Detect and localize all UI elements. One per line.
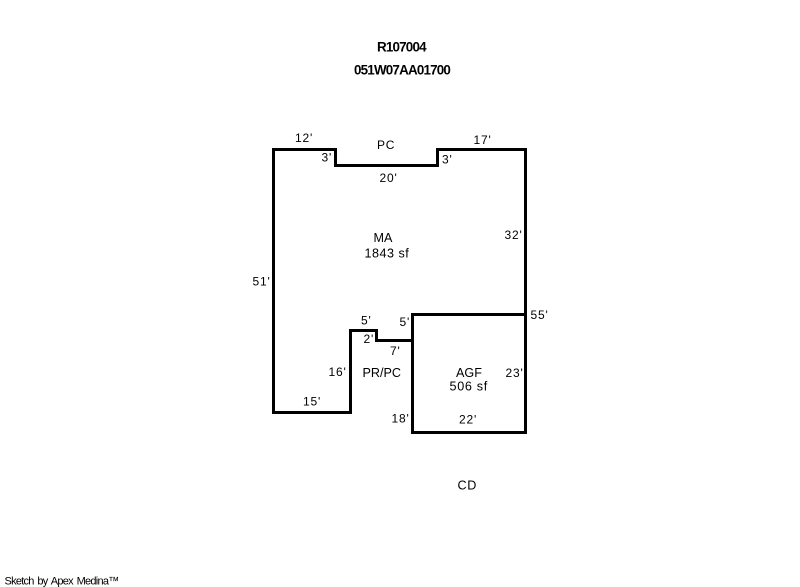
svg-text:506 sf: 506 sf [450,380,489,394]
svg-text:15': 15' [303,395,321,409]
svg-text:2': 2' [364,332,375,346]
svg-text:51': 51' [253,275,271,289]
svg-text:AGF: AGF [456,366,482,380]
svg-text:3': 3' [442,153,453,167]
svg-text:17': 17' [474,133,492,147]
svg-text:3': 3' [322,151,333,165]
svg-text:PR/PC: PR/PC [363,366,402,380]
svg-text:MA: MA [374,231,393,245]
svg-text:12': 12' [295,131,313,145]
svg-text:5': 5' [400,315,411,329]
svg-text:22': 22' [459,413,477,427]
svg-text:32': 32' [505,228,523,242]
svg-text:PC: PC [377,138,395,152]
svg-text:1843 sf: 1843 sf [365,247,410,261]
svg-text:55': 55' [531,308,549,322]
svg-text:5': 5' [361,314,372,328]
svg-text:R107004: R107004 [377,40,427,55]
svg-text:20': 20' [380,171,398,185]
svg-text:23': 23' [506,366,524,380]
svg-text:Sketch by Apex Medina™: Sketch by Apex Medina™ [5,576,119,587]
svg-text:051W07AA01700: 051W07AA01700 [354,63,450,78]
svg-text:CD: CD [458,479,478,493]
svg-text:18': 18' [392,412,410,426]
svg-text:16': 16' [329,365,347,379]
svg-text:7': 7' [390,344,401,358]
